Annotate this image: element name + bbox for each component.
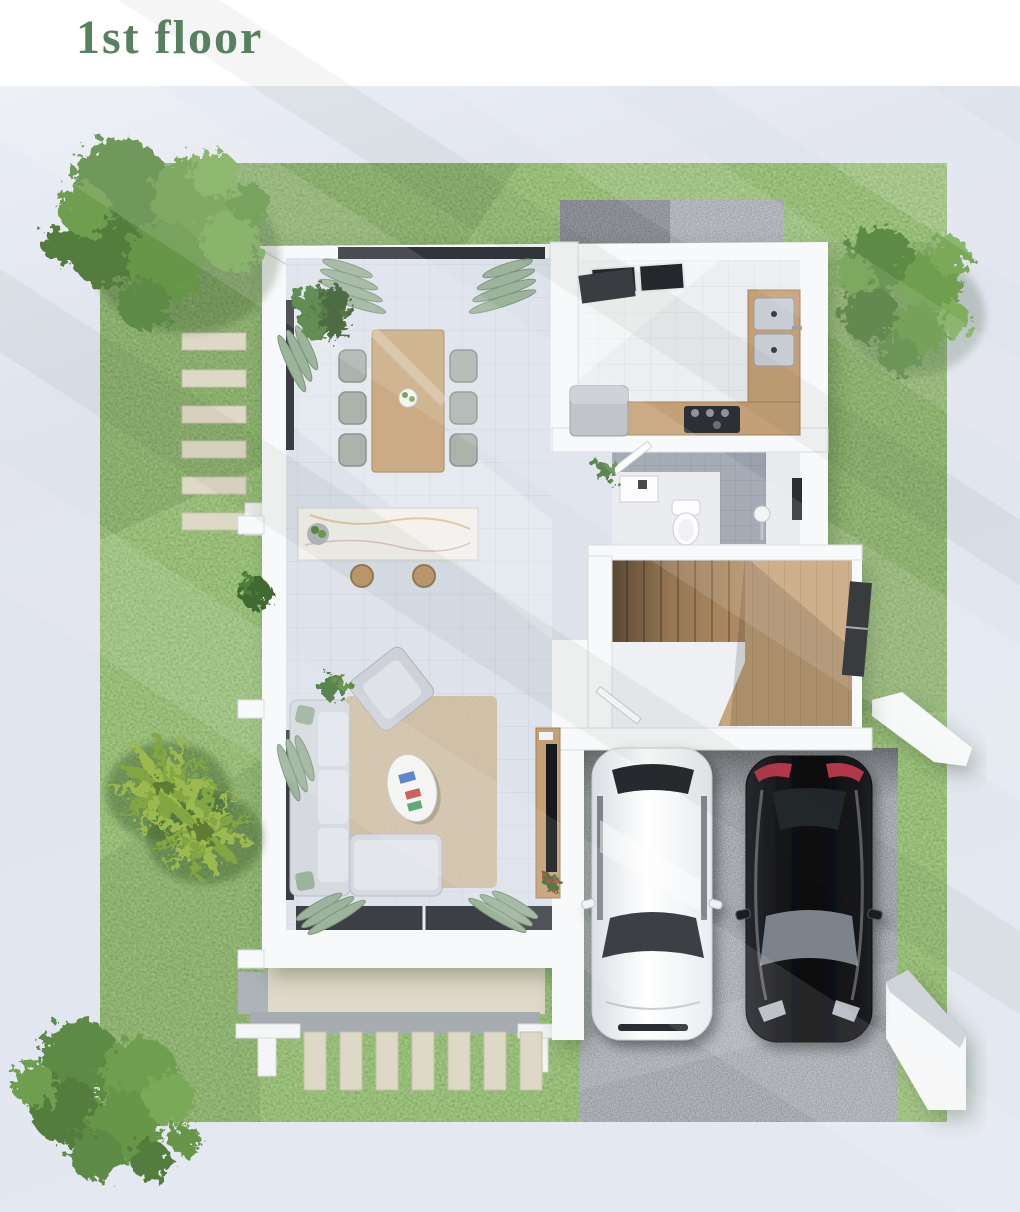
floor-plan-render [0, 0, 1020, 1212]
page-title: 1st floor [76, 10, 263, 65]
stove [684, 406, 740, 433]
stepping-stones-bottom [304, 1032, 542, 1090]
